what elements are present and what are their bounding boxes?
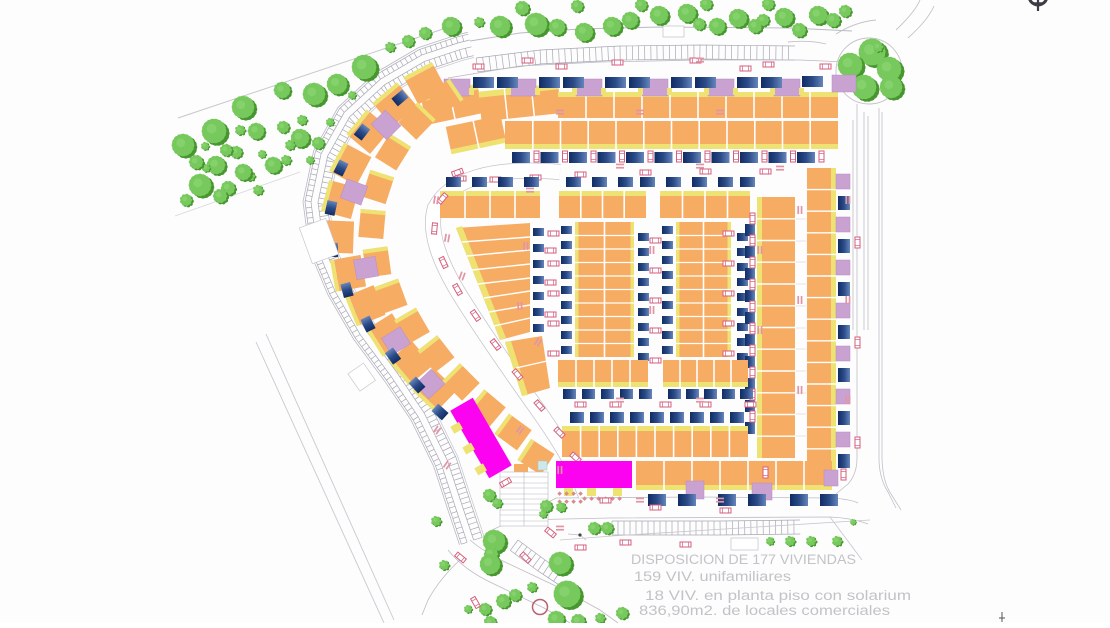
svg-text:836,90m2. de locales comercial: 836,90m2. de locales comerciales [639,603,890,618]
svg-text:18 VIV. en planta piso con sol: 18 VIV. en planta piso con solarium [645,588,911,603]
svg-text:DISPOSICION DE 177 VIVIENDAS: DISPOSICION DE 177 VIVIENDAS [631,552,856,567]
svg-text:159 VIV. unifamiliares: 159 VIV. unifamiliares [634,569,791,584]
